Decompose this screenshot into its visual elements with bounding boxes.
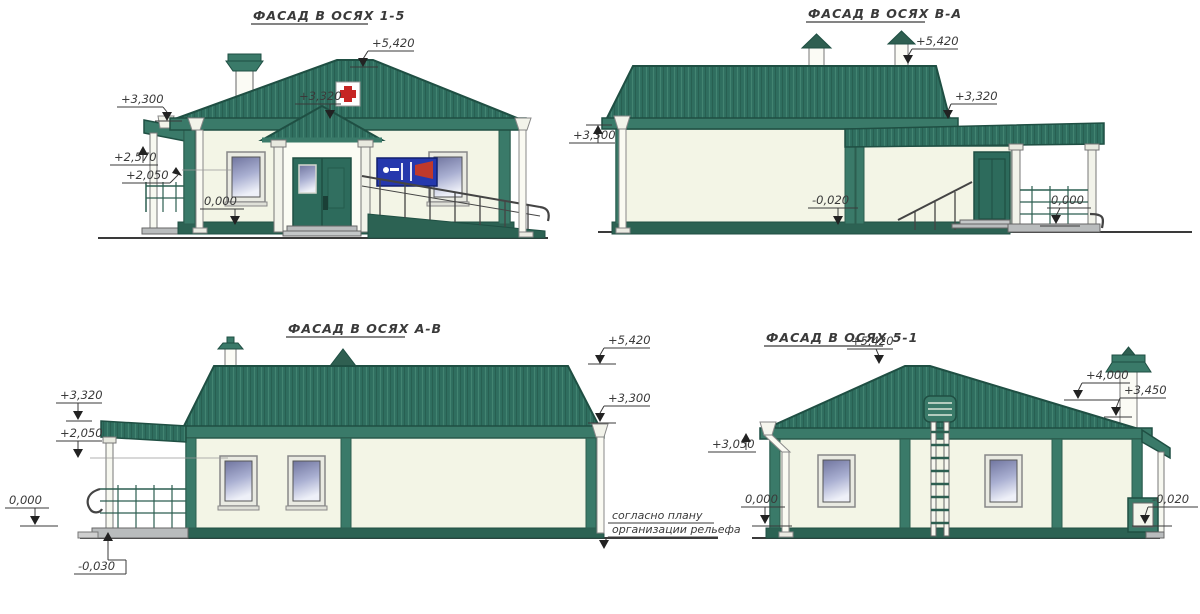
svg-text:+3,320: +3,320: [299, 89, 342, 103]
pilaster: [856, 146, 864, 224]
porch-canopy: [1142, 430, 1170, 458]
window: [286, 456, 327, 510]
svg-text:+4,000: +4,000: [1086, 368, 1129, 382]
downspout: [515, 118, 533, 237]
plinth: [766, 528, 1146, 538]
svg-text:+2,050: +2,050: [60, 426, 103, 440]
svg-text:+3,300: +3,300: [121, 92, 164, 106]
facade-1-5: ФАСАД В ОСЯХ 1-5: [98, 8, 549, 238]
svg-text:+3,320: +3,320: [60, 388, 103, 402]
facade-5-1: ФАСАД В ОСЯХ 5-1: [708, 330, 1198, 538]
handrail-end-curl: [88, 489, 102, 512]
svg-text:-0,030: -0,030: [78, 559, 115, 573]
handrail-end-curl: [540, 207, 549, 221]
drawing-sheet: ФАСАД В ОСЯХ 1-5: [0, 0, 1200, 614]
plinth: [612, 222, 1010, 234]
eave-fascia: [180, 426, 604, 438]
elevation-mark: +3,320: [56, 388, 103, 421]
svg-text:+3,320: +3,320: [955, 89, 998, 103]
facade-1-5-title: ФАСАД В ОСЯХ 1-5: [253, 8, 405, 23]
plinth: [182, 528, 604, 538]
svg-text:+3,300: +3,300: [608, 391, 651, 405]
svg-text:+5,420: +5,420: [608, 333, 651, 347]
facade-B-A: ФАСАД В ОСЯХ В-А: [569, 6, 1192, 234]
corner-pilaster: [186, 438, 196, 528]
main-roof: [183, 366, 600, 428]
svg-text:0,000: 0,000: [204, 194, 237, 208]
svg-text:0,000: 0,000: [745, 492, 778, 506]
porch-column: [1012, 150, 1020, 228]
facade-5-1-title: ФАСАД В ОСЯХ 5-1: [766, 330, 918, 345]
window: [818, 455, 855, 507]
pilaster: [900, 439, 910, 528]
pilaster: [1052, 439, 1062, 528]
facade-A-B: ФАСАД В ОСЯХ А-В: [5, 321, 741, 574]
elevation-mark: 0,000: [5, 493, 58, 526]
svg-text:-0,020: -0,020: [1152, 492, 1189, 506]
elevation-mark: +5,420: [847, 334, 894, 364]
main-roof: [606, 66, 950, 120]
entrance-door: [293, 158, 351, 230]
roof-hatch-vent: [924, 396, 956, 422]
elevation-mark: +3,050: [708, 433, 756, 452]
elevations-canvas: ФАСАД В ОСЯХ 1-5: [0, 0, 1200, 614]
svg-text:+2,050: +2,050: [126, 168, 169, 182]
pilaster: [341, 438, 351, 528]
side-door: [974, 152, 1010, 226]
porch-column: [274, 147, 283, 232]
corner-pilaster: [770, 439, 780, 528]
facade-B-A-title: ФАСАД В ОСЯХ В-А: [808, 6, 962, 21]
clinic-signboard: [377, 158, 437, 186]
svg-text:-0,020: -0,020: [812, 193, 849, 207]
svg-text:+2,570: +2,570: [114, 150, 157, 164]
facade-A-B-title: ФАСАД В ОСЯХ А-В: [288, 321, 442, 336]
ground-note-line1: согласно плану: [612, 509, 703, 522]
elevation-mark: +3,300: [569, 125, 616, 143]
svg-text:+5,420: +5,420: [372, 36, 415, 50]
roof-vent: [330, 349, 356, 366]
window: [985, 455, 1022, 507]
svg-text:0,000: 0,000: [9, 493, 42, 507]
porch-column: [1088, 150, 1096, 228]
svg-text:0,000: 0,000: [1051, 193, 1084, 207]
svg-text:+3,450: +3,450: [1124, 383, 1167, 397]
corner-pilaster: [184, 128, 195, 224]
corner-pilaster: [586, 438, 596, 528]
elevation-mark: 0,000: [1040, 193, 1091, 226]
eave-fascia: [760, 428, 1152, 439]
roof-vent: [218, 337, 243, 367]
ground-note-line2: организации рельефа: [612, 523, 741, 536]
elevation-mark: +5,420: [903, 34, 959, 64]
svg-text:+5,420: +5,420: [851, 334, 894, 348]
svg-text:+5,420: +5,420: [916, 34, 959, 48]
porch-column: [106, 443, 113, 538]
ground-note: согласно плану организации рельефа: [599, 509, 741, 549]
elevation-mark: +5,420: [588, 333, 651, 364]
svg-text:+3,300: +3,300: [573, 128, 616, 142]
elevation-mark: +3,300: [588, 391, 651, 423]
elevation-mark: +3,320: [943, 89, 998, 119]
window: [218, 456, 259, 510]
